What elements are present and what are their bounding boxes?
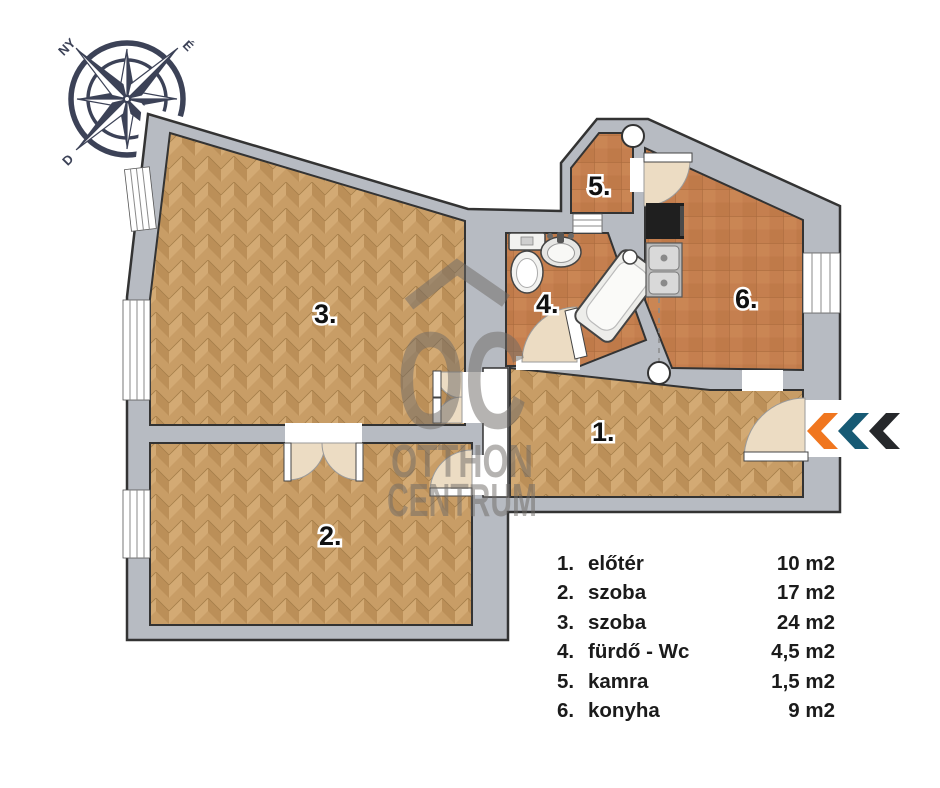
legend-room-number: 1. <box>557 549 588 578</box>
watermark-logo: OC OTTHON CENTRUM <box>387 267 537 526</box>
step-bathroom-pantry <box>573 214 602 233</box>
window-left-middle <box>123 300 150 400</box>
legend-room-name: fürdő - Wc <box>588 637 771 666</box>
legend-room-name: előtér <box>588 549 777 578</box>
room-1-label: 1. <box>592 417 615 447</box>
legend-room-area: 4,5 m2 <box>771 637 835 666</box>
entrance-direction-arrows <box>807 413 900 449</box>
watermark-line2: CENTRUM <box>387 474 537 526</box>
legend-room-area: 17 m2 <box>777 578 835 607</box>
stove-icon <box>646 203 684 239</box>
legend-room-number: 6. <box>557 696 588 725</box>
legend-room-area: 1,5 m2 <box>771 667 835 696</box>
room-2-label: 2. <box>319 521 342 551</box>
compass-south-label: D <box>59 151 76 168</box>
kitchen-sink-icon <box>646 243 682 297</box>
toilet-icon <box>509 233 545 293</box>
column-marker-top <box>622 125 644 147</box>
opening-kitchen-hall <box>742 370 783 391</box>
legend-row: 4. fürdő - Wc 4,5 m2 <box>557 637 835 666</box>
legend-row: 5. kamra 1,5 m2 <box>557 667 835 696</box>
legend-room-number: 4. <box>557 637 588 666</box>
legend-row: 2. szoba 17 m2 <box>557 578 835 607</box>
legend-room-number: 5. <box>557 667 588 696</box>
room-5-label: 5. <box>588 171 611 201</box>
compass-north-label: É <box>180 37 197 54</box>
room-legend: 1. előtér 10 m2 2. szoba 17 m2 3. szoba … <box>557 549 835 725</box>
room-6-label: 6. <box>735 284 758 314</box>
room-4-label: 4. <box>536 289 559 319</box>
legend-row: 6. konyha 9 m2 <box>557 696 835 725</box>
window-kitchen-right <box>803 253 840 313</box>
room-3-label: 3. <box>314 299 337 329</box>
legend-row: 1. előtér 10 m2 <box>557 549 835 578</box>
legend-room-area: 9 m2 <box>788 696 835 725</box>
legend-room-name: szoba <box>588 578 777 607</box>
compass-west-label: NY <box>55 35 79 59</box>
legend-room-area: 24 m2 <box>777 608 835 637</box>
legend-room-name: konyha <box>588 696 788 725</box>
legend-room-number: 3. <box>557 608 588 637</box>
legend-room-number: 2. <box>557 578 588 607</box>
legend-room-name: szoba <box>588 608 777 637</box>
window-left-lower <box>123 490 150 558</box>
legend-room-name: kamra <box>588 667 771 696</box>
chevron-arrow-dark <box>869 413 900 449</box>
column-marker-hall <box>648 362 670 384</box>
legend-row: 3. szoba 24 m2 <box>557 608 835 637</box>
legend-room-area: 10 m2 <box>777 549 835 578</box>
floor-plan-page: NY É D <box>0 0 940 788</box>
